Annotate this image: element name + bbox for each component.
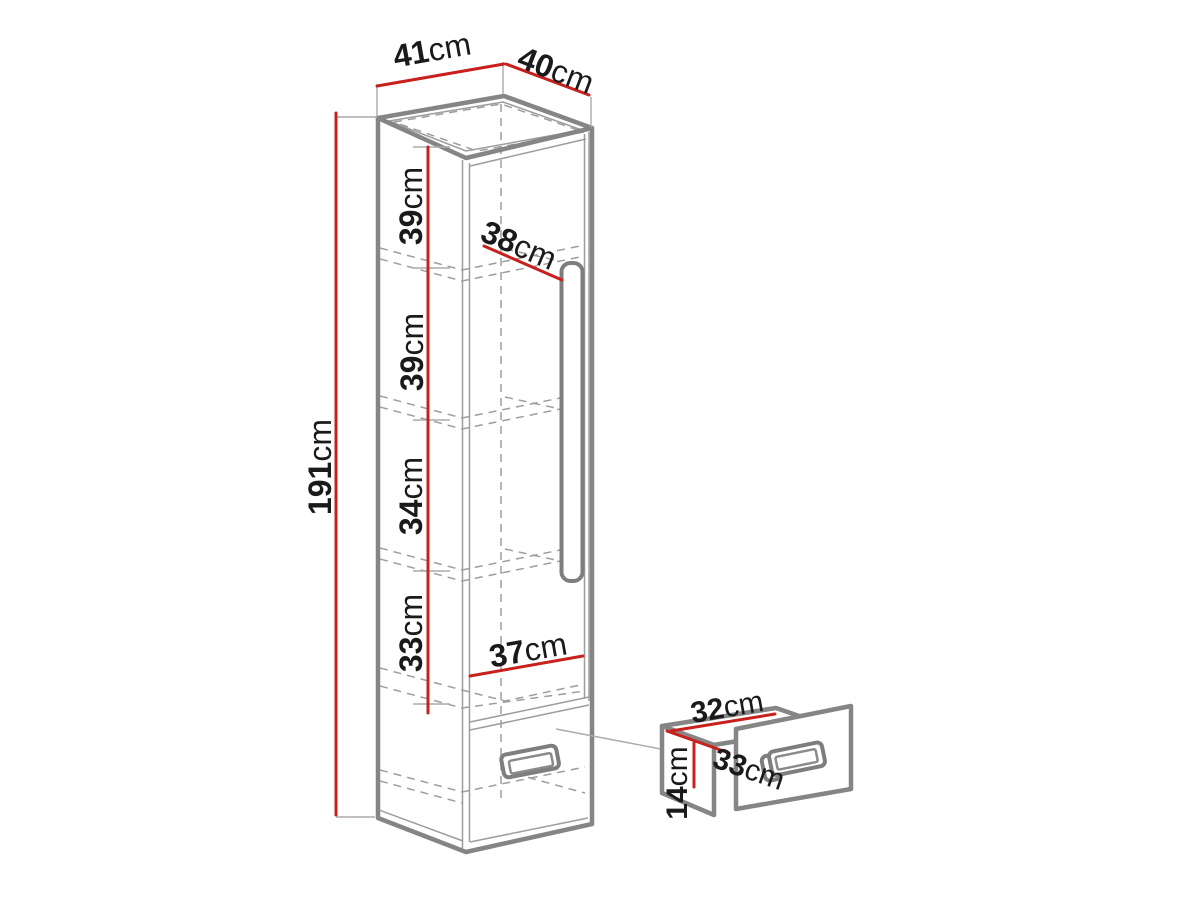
label-section-3: 34cm: [393, 457, 429, 535]
label-section-1: 39cm: [393, 167, 429, 245]
label-section-4: 33cm: [393, 594, 429, 672]
label-top-depth: 41cm: [390, 25, 473, 74]
label-drawer-height: 14cm: [661, 746, 694, 819]
label-section-2: 39cm: [394, 313, 430, 391]
label-top-width: 40cm: [513, 39, 599, 101]
door-handle: [562, 263, 583, 581]
diagram-canvas: 41cm 40cm 191cm 39cm 39cm 34cm 33cm 38cm…: [0, 0, 1202, 901]
wardrobe-dimension-diagram: 41cm 40cm 191cm 39cm 39cm 34cm 33cm 38cm…: [0, 0, 1202, 901]
label-height: 191cm: [302, 419, 338, 515]
